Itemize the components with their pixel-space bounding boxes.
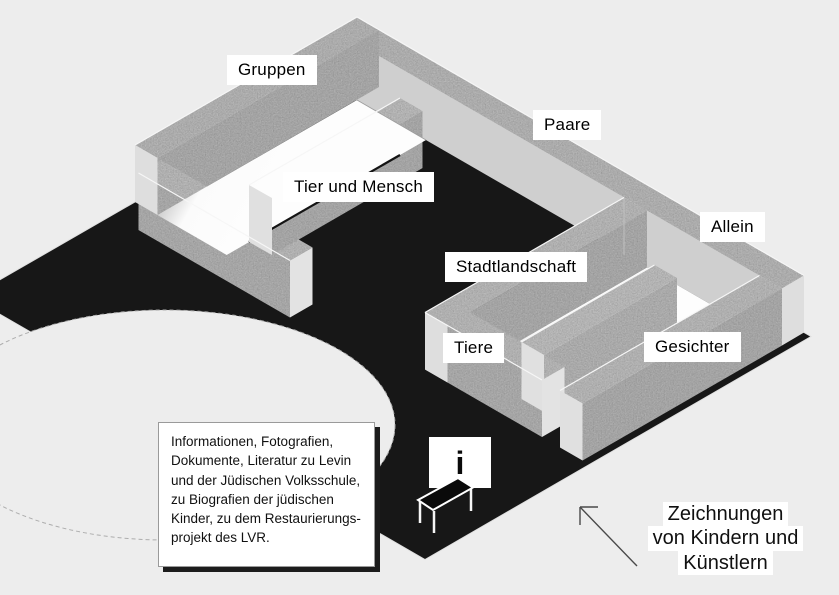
room-label-paare: Paare: [533, 110, 601, 140]
info-line: Dokumente, Literatur zu Levin: [171, 451, 362, 470]
room-label-tier-und-mensch: Tier und Mensch: [283, 172, 434, 202]
annotation-line: Zeichnungen: [663, 502, 789, 526]
bench-icon: [408, 470, 488, 540]
room-label-gruppen: Gruppen: [227, 55, 317, 85]
room-label-stadtlandschaft: Stadtlandschaft: [445, 252, 587, 282]
info-line: und der Jüdischen Volksschule,: [171, 471, 362, 490]
annotation-line: von Kindern und: [648, 526, 804, 550]
room-label-allein: Allein: [700, 212, 765, 242]
bench-icon-svg: [408, 470, 488, 540]
info-line: projekt des LVR.: [171, 528, 362, 547]
annotation-zeichnungen: Zeichnungen von Kindern und Künstlern: [608, 502, 839, 575]
info-line: Kinder, zu dem Restaurierungs-: [171, 509, 362, 528]
info-line: zu Biografien der jüdischen: [171, 490, 362, 509]
info-line: Informationen, Fotografien,: [171, 432, 362, 451]
exhibition-floor-plan: Gruppen Paare Tier und Mensch Allein Sta…: [0, 0, 839, 595]
info-box: Informationen, Fotografien, Dokumente, L…: [158, 422, 375, 567]
room-label-gesichter: Gesichter: [644, 332, 741, 362]
annotation-line: Künstlern: [678, 551, 773, 575]
bench-top: [418, 478, 473, 510]
room-label-tiere: Tiere: [443, 333, 504, 363]
